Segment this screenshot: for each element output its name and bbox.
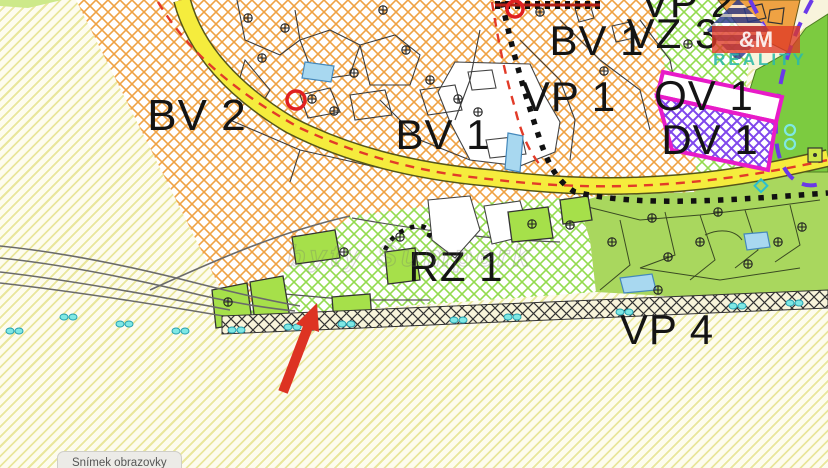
site-watermark: byty Šumperk (287, 240, 533, 274)
zone-label-vz3: VZ 3 (627, 13, 720, 55)
green-sliver (0, 0, 62, 8)
zone-label-bv2: BV 2 (147, 94, 246, 138)
mm-reality-logo-red-box: &M (712, 26, 800, 53)
zone-label-bv1-village: BV 1 (395, 114, 490, 156)
zone-label-ov1: OV 1 (654, 75, 754, 117)
screenshot-button[interactable]: Snímek obrazovky (57, 451, 182, 468)
zone-label-vp1: VP 1 (522, 76, 616, 118)
zoning-map-canvas[interactable]: BV 2 BV 1 BV 1 VP 2 VZ 3 VP 1 OV 1 DV 1 … (0, 0, 828, 468)
zone-label-dv1: DV 1 (661, 119, 758, 161)
zone-label-vp4: VP 4 (620, 309, 714, 351)
mm-reality-logo-text: REALITY (710, 50, 810, 70)
green-square-dot (813, 153, 817, 157)
map-graphics (0, 0, 828, 468)
